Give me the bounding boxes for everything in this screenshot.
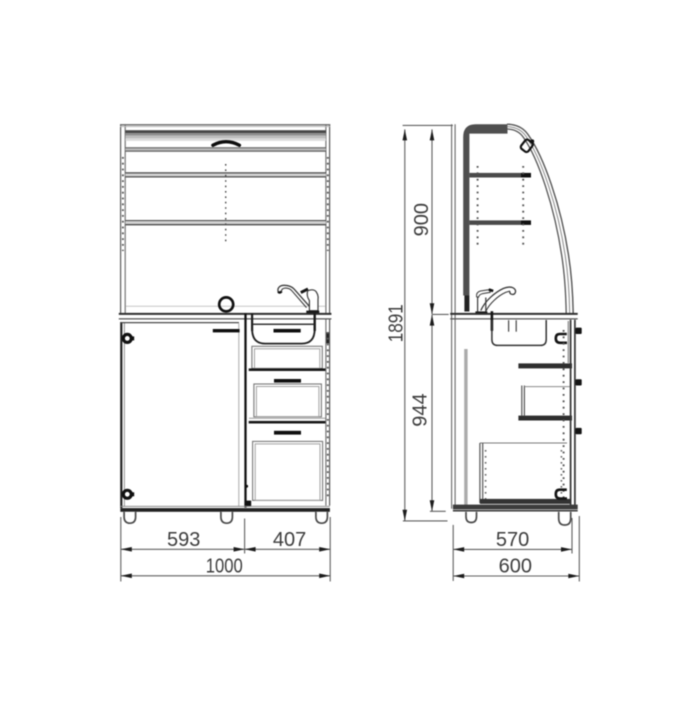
- svg-text:1000: 1000: [206, 555, 243, 577]
- svg-text:407: 407: [273, 529, 306, 551]
- svg-text:1891: 1891: [386, 304, 408, 342]
- svg-text:570: 570: [496, 529, 529, 551]
- svg-text:944: 944: [410, 393, 432, 426]
- svg-text:600: 600: [499, 555, 532, 577]
- svg-text:900: 900: [411, 203, 433, 236]
- svg-text:593: 593: [167, 529, 200, 551]
